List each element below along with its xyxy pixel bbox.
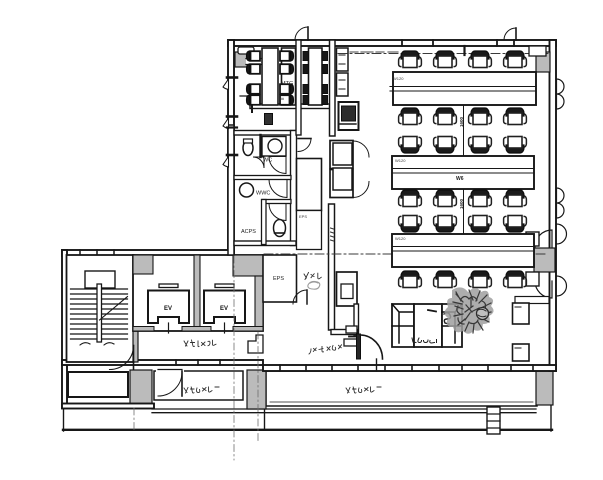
svg-text:EV: EV [164, 306, 172, 312]
svg-text:WWC: WWC [256, 191, 270, 197]
svg-text:ACPS: ACPS [241, 229, 256, 235]
svg-text:1600: 1600 [459, 198, 464, 209]
svg-text:MTG: MTG [281, 81, 293, 87]
svg-text:EPS: EPS [299, 214, 307, 219]
svg-text:W120: W120 [395, 158, 406, 163]
svg-text:1600: 1600 [459, 116, 464, 127]
svg-text:EV: EV [220, 306, 228, 312]
svg-text:W120: W120 [395, 236, 406, 241]
svg-text:EPS: EPS [273, 276, 284, 282]
svg-text:W120: W120 [393, 76, 404, 81]
svg-text:W6: W6 [456, 176, 464, 182]
